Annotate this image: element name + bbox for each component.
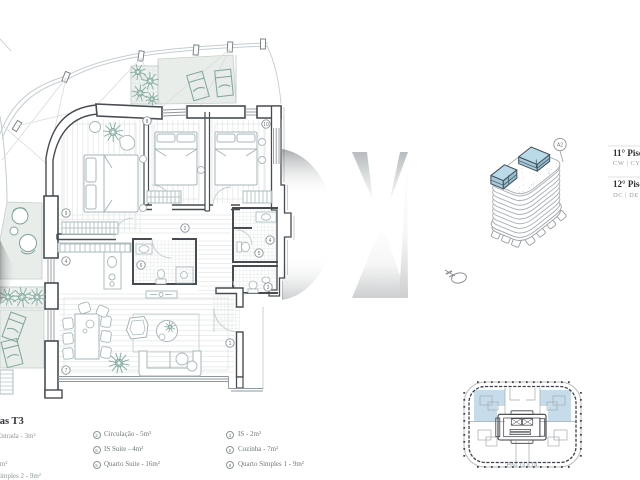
svg-text:4: 4: [269, 238, 272, 244]
svg-text:Piso 13 a 14: Piso 13 a 14: [507, 463, 538, 469]
svg-text:10: 10: [263, 122, 269, 128]
svg-text:8: 8: [146, 119, 149, 125]
svg-text:4: 4: [65, 259, 68, 265]
svg-text:7: 7: [65, 368, 68, 374]
svg-text:5: 5: [258, 251, 261, 257]
svg-text:1: 1: [229, 341, 232, 347]
svg-text:A2: A2: [557, 143, 563, 149]
svg-text:6: 6: [140, 263, 143, 269]
svg-text:2: 2: [184, 226, 187, 232]
svg-text:9: 9: [65, 211, 68, 217]
svg-text:3: 3: [267, 285, 270, 291]
